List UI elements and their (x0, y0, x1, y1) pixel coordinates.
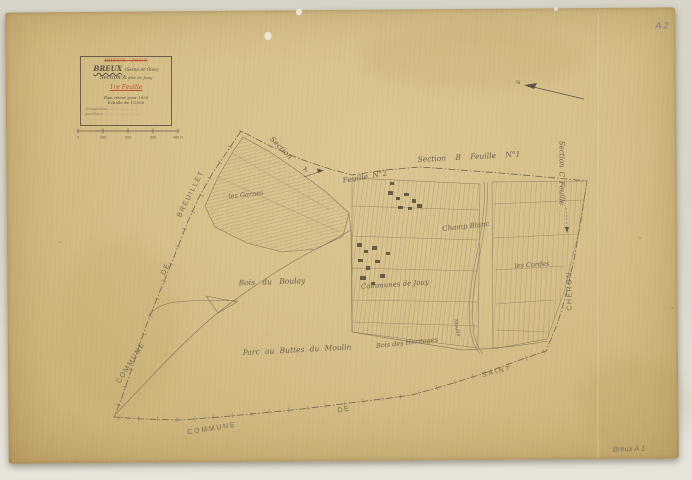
title-section: Section A (100, 75, 127, 81)
title-legend-row: parcellaire ............................… (85, 112, 171, 117)
title-legend: Triangulation ..........................… (81, 107, 171, 117)
title-commune-line: BREUX (Seine-et-Oise) (81, 64, 171, 73)
label-cheron: CHERON (567, 271, 574, 310)
label-section-c: Section C Feuille (558, 141, 565, 205)
sheet-code-top-right: A 2 (655, 22, 668, 31)
scale-bar: 0 100 200 300 400 m (77, 129, 183, 140)
scale-tick-label: 100 (100, 136, 106, 140)
scanned-cadastral-map: N 0 100 200 300 400 m BREUX - JOUY BREUX… (0, 0, 692, 480)
north-arrow: N (516, 80, 584, 99)
title-section-line: Section A dite de Jouy (81, 75, 171, 81)
boundary-ticks (114, 131, 546, 420)
scale-tick-label: 300 (150, 136, 156, 140)
title-section-suffix: dite de Jouy (128, 75, 152, 80)
scale-tick-label: 400 m (173, 136, 184, 140)
les-garnes-parcels (205, 137, 349, 252)
field-strips-west-group (351, 178, 480, 348)
title-commune-name: BREUX (94, 64, 123, 73)
title-departement: (Seine-et-Oise) (125, 68, 159, 73)
title-scale: Échelle de 1/2500 (81, 100, 171, 105)
sheet-code-bottom-right: Breux A 1 (613, 445, 646, 454)
title-block: BREUX - JOUY BREUX (Seine-et-Oise) Secti… (80, 56, 172, 126)
title-feuille: 1re Feuille (81, 84, 171, 91)
roads-paths (115, 214, 547, 415)
north-arrow-label: N (516, 80, 521, 86)
scale-tick-label: 200 (125, 136, 131, 140)
scale-tick-label: 0 (77, 136, 79, 140)
label-bois-du-boulay: Bois du Boulay (239, 277, 306, 287)
